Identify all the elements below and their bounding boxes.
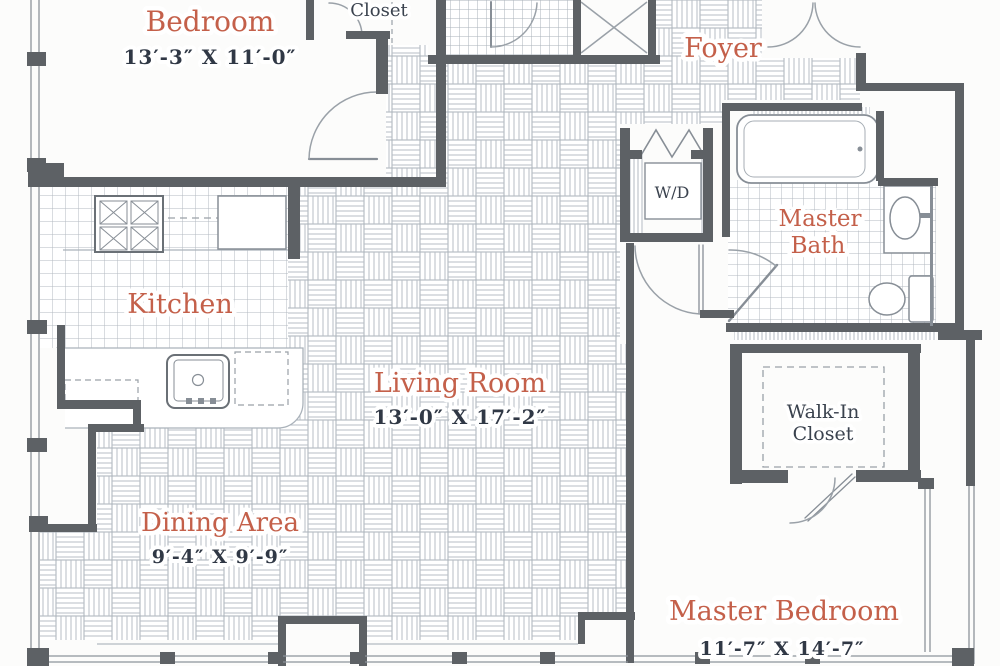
room-label-master-bath-2: Bath bbox=[791, 233, 846, 259]
kitchen-sink-fixture bbox=[167, 355, 229, 408]
bedroom-door bbox=[309, 92, 377, 159]
bath-wall-hatch bbox=[734, 332, 936, 340]
bathtub-fixture bbox=[737, 115, 878, 183]
room-label-laundry: W/D bbox=[655, 183, 690, 202]
room-label-foyer: Foyer bbox=[684, 33, 762, 64]
room-label-walk-in-closet-1: Walk-In bbox=[787, 401, 860, 423]
refrigerator-fixture bbox=[218, 196, 286, 249]
floor-plan-drawing: Bedroom 13′-3″ X 11′-0″ Closet Foyer W/D… bbox=[0, 0, 1000, 666]
room-label-kitchen: Kitchen bbox=[127, 289, 233, 320]
room-dims-dining-area: 9′-4″ X 9′-9″ bbox=[152, 546, 289, 568]
entry-tile-floor bbox=[437, 0, 573, 55]
room-label-master-bedroom: Master Bedroom bbox=[669, 596, 899, 627]
stove-fixture bbox=[95, 196, 163, 252]
room-label-bedroom: Bedroom bbox=[146, 5, 275, 38]
room-label-master-bath-1: Master bbox=[779, 206, 862, 232]
room-dims-master-bedroom: 11′-7″ X 14′-7″ bbox=[699, 638, 864, 660]
floor-plan: Bedroom 13′-3″ X 11′-0″ Closet Foyer W/D… bbox=[0, 0, 1000, 666]
room-label-dining-area: Dining Area bbox=[141, 508, 299, 538]
room-dims-bedroom: 13′-3″ X 11′-0″ bbox=[124, 45, 297, 69]
room-dims-living-room: 13′-0″ X 17′-2″ bbox=[374, 405, 547, 429]
room-label-closet: Closet bbox=[350, 0, 408, 21]
room-label-living-room: Living Room bbox=[374, 368, 546, 399]
room-label-walk-in-closet-2: Closet bbox=[793, 423, 854, 445]
bathroom-sink-fixture bbox=[884, 186, 932, 253]
